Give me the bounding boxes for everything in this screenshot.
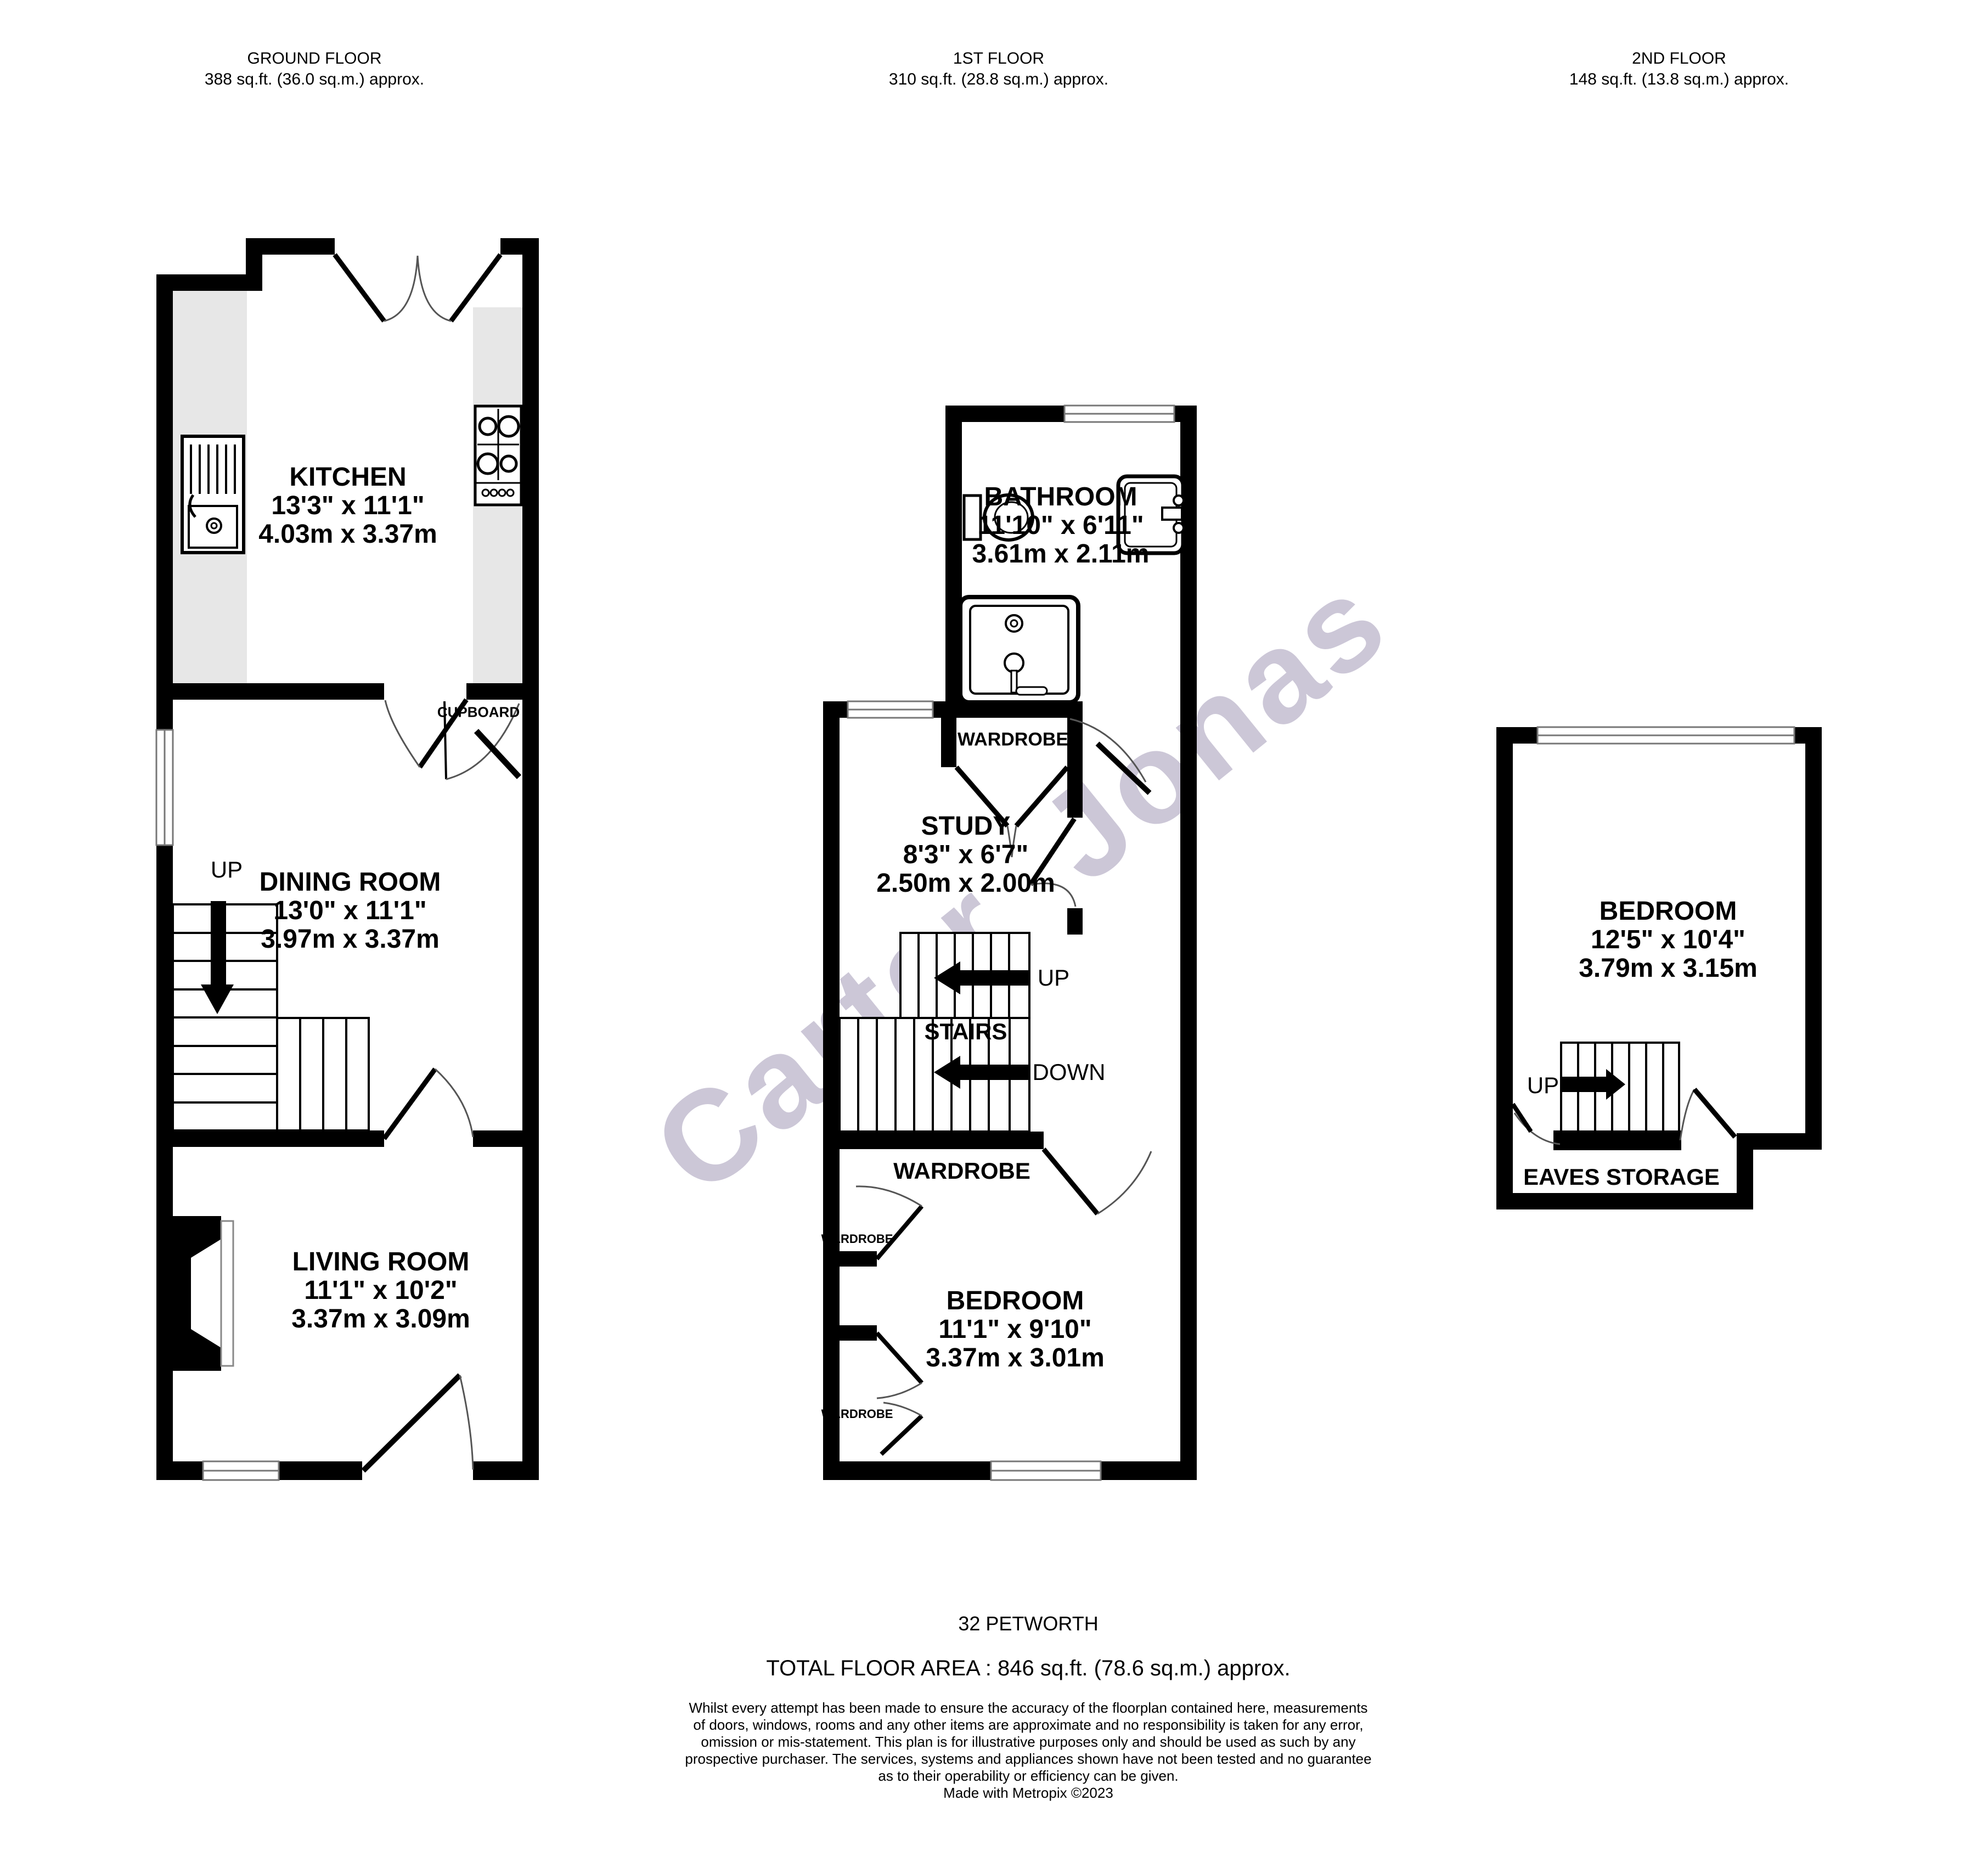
disclaimer-line: omission or mis-statement. This plan is … xyxy=(685,1734,1371,1751)
up-label-first: UP xyxy=(1038,965,1069,991)
study-metric: 2.50m x 2.00m xyxy=(876,869,1055,898)
disclaimer-line: Whilst every attempt has been made to en… xyxy=(685,1700,1371,1717)
bedroom2-imperial: 12'5" x 10'4" xyxy=(1579,926,1758,954)
bedroom2-name: BEDROOM xyxy=(1579,897,1758,926)
bedroom1-label: BEDROOM 11'1" x 9'10" 3.37m x 3.01m xyxy=(926,1287,1105,1372)
door-arc xyxy=(1044,1149,1151,1214)
kitchen-metric: 4.03m x 3.37m xyxy=(258,520,437,549)
wardrobe-label-closet2: WARDROBE xyxy=(821,1407,893,1421)
stairs xyxy=(1555,1043,1680,1149)
living-imperial: 11'1" x 10'2" xyxy=(291,1276,470,1305)
wardrobe-label-big: WARDROBE xyxy=(893,1158,1030,1184)
header-first-title: 1ST FLOOR xyxy=(889,48,1108,69)
bedroom2-label: BEDROOM 12'5" x 10'4" 3.79m x 3.15m xyxy=(1579,897,1758,983)
wardrobe-label-top: WARDROBE xyxy=(958,729,1068,751)
up-label-second: UP xyxy=(1527,1072,1559,1099)
living-room-label: LIVING ROOM 11'1" x 10'2" 3.37m x 3.09m xyxy=(291,1248,470,1334)
disclaimer-line: prospective purchaser. The services, sys… xyxy=(685,1751,1371,1768)
bedroom1-name: BEDROOM xyxy=(926,1287,1105,1315)
header-first-area: 310 sq.ft. (28.8 sq.m.) approx. xyxy=(889,69,1108,90)
study-label: STUDY 8'3" x 6'7" 2.50m x 2.00m xyxy=(876,812,1055,898)
eaves-storage-label: EAVES STORAGE xyxy=(1523,1164,1720,1190)
header-first-floor: 1ST FLOOR 310 sq.ft. (28.8 sq.m.) approx… xyxy=(889,48,1108,90)
dining-room-label: DINING ROOM 13'0" x 11'1" 3.97m x 3.37m xyxy=(260,868,441,954)
footer: 32 PETWORTH TOTAL FLOOR AREA : 846 sq.ft… xyxy=(685,1612,1371,1802)
window xyxy=(1538,727,1794,744)
living-metric: 3.37m x 3.09m xyxy=(291,1305,470,1334)
disclaimer-line: as to their operability or efficiency ca… xyxy=(685,1768,1371,1785)
sink-icon xyxy=(182,436,244,553)
shower-icon xyxy=(960,597,1078,702)
header-second-area: 148 sq.ft. (13.8 sq.m.) approx. xyxy=(1569,69,1789,90)
disclaimer-line: of doors, windows, rooms and any other i… xyxy=(685,1717,1371,1734)
header-ground-title: GROUND FLOOR xyxy=(205,48,424,69)
stairs-label: STAIRS xyxy=(925,1019,1007,1045)
bathroom-label: BATHROOM 11'10" x 6'11" 3.61m x 2.11m xyxy=(972,483,1150,569)
kitchen-label: KITCHEN 13'3" x 11'1" 4.03m x 3.37m xyxy=(258,463,437,549)
bathroom-metric: 3.61m x 2.11m xyxy=(972,540,1150,569)
total-floor-area: TOTAL FLOOR AREA : 846 sq.ft. (78.6 sq.m… xyxy=(685,1656,1371,1681)
wardrobe-label-closet1: WARDROBE xyxy=(821,1232,893,1246)
hob-icon xyxy=(475,406,521,505)
dining-imperial: 13'0" x 11'1" xyxy=(260,897,441,925)
door-arc xyxy=(384,1069,473,1139)
cupboard-label: CUPBOARD xyxy=(437,704,520,721)
living-name: LIVING ROOM xyxy=(291,1248,470,1276)
study-imperial: 8'3" x 6'7" xyxy=(876,841,1055,869)
up-label-ground: UP xyxy=(211,857,243,883)
bathroom-name: BATHROOM xyxy=(972,483,1150,511)
bathroom-imperial: 11'10" x 6'11" xyxy=(972,511,1150,540)
dining-name: DINING ROOM xyxy=(260,868,441,897)
study-name: STUDY xyxy=(876,812,1055,841)
bedroom2-metric: 3.79m x 3.15m xyxy=(1579,954,1758,983)
metropix-credit: Made with Metropix ©2023 xyxy=(685,1785,1371,1802)
header-second-floor: 2ND FLOOR 148 sq.ft. (13.8 sq.m.) approx… xyxy=(1569,48,1789,90)
dining-metric: 3.97m x 3.37m xyxy=(260,925,441,954)
kitchen-name: KITCHEN xyxy=(258,463,437,492)
header-ground-area: 388 sq.ft. (36.0 sq.m.) approx. xyxy=(205,69,424,90)
door-arc xyxy=(363,1375,473,1471)
header-ground-floor: GROUND FLOOR 388 sq.ft. (36.0 sq.m.) app… xyxy=(205,48,424,90)
fireplace xyxy=(173,1216,233,1371)
bedroom1-metric: 3.37m x 3.01m xyxy=(926,1344,1105,1372)
kitchen-imperial: 13'3" x 11'1" xyxy=(258,492,437,520)
bedroom1-imperial: 11'1" x 9'10" xyxy=(926,1315,1105,1344)
property-address: 32 PETWORTH xyxy=(685,1612,1371,1635)
floorplan-page: Carter Jonas xyxy=(0,0,1988,1868)
down-label-first: DOWN xyxy=(1033,1059,1106,1085)
header-second-title: 2ND FLOOR xyxy=(1569,48,1789,69)
